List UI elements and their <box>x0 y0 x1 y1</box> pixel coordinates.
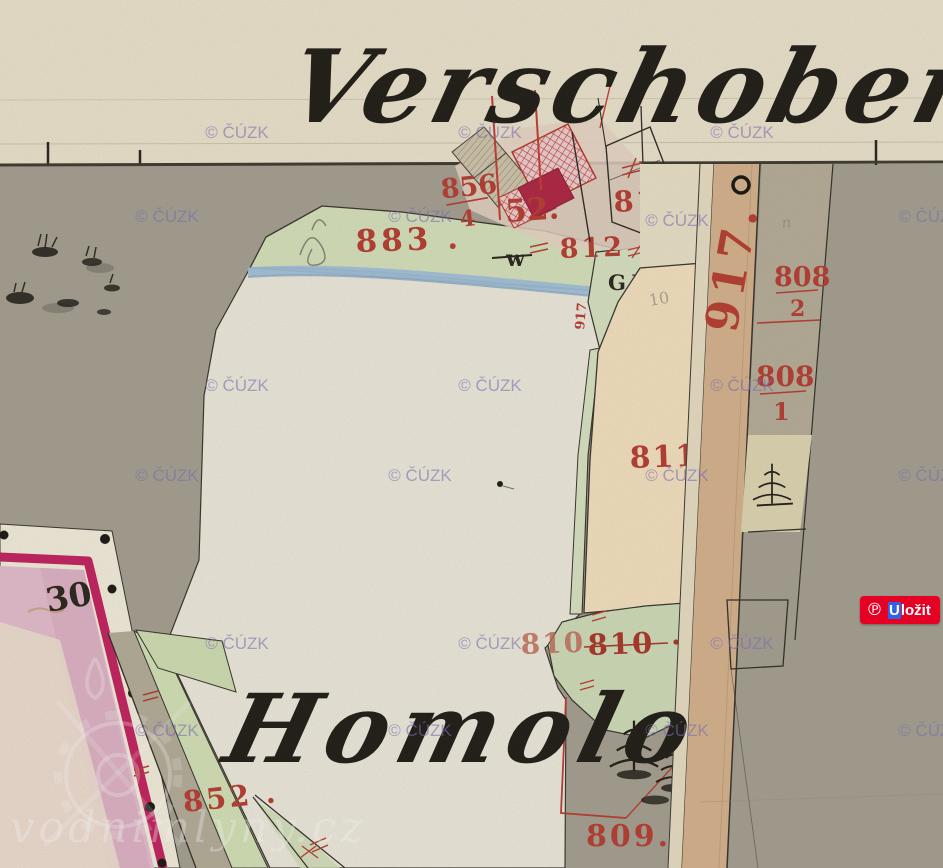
map-viewer: 30 852 . 883 . G.W. 917 <box>0 0 943 868</box>
cadastral-map[interactable]: 30 852 . 883 . G.W. 917 <box>0 0 943 868</box>
pinterest-save-button[interactable]: ℗ Uložit <box>860 596 940 624</box>
paper-grain <box>0 0 943 868</box>
pinterest-save-label: Uložit <box>888 603 931 618</box>
pinterest-logo-icon: ℗ <box>866 602 883 619</box>
save-label-selected-letter: U <box>888 602 901 619</box>
save-label-rest: ložit <box>901 602 931 619</box>
